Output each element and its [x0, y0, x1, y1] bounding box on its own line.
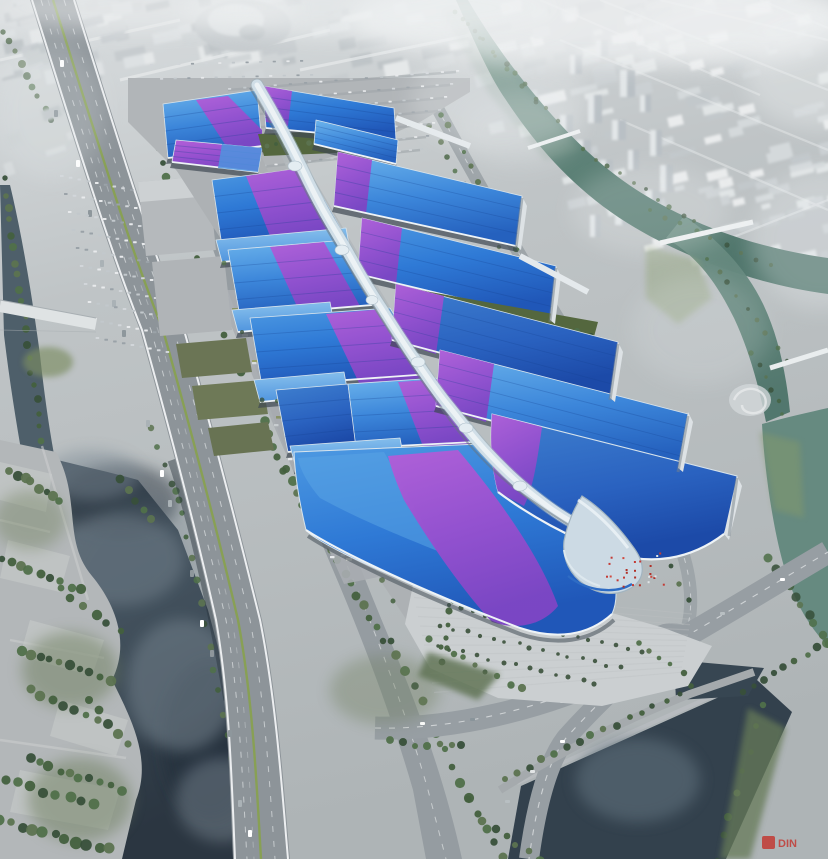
svg-text:DIN: DIN	[778, 838, 797, 850]
